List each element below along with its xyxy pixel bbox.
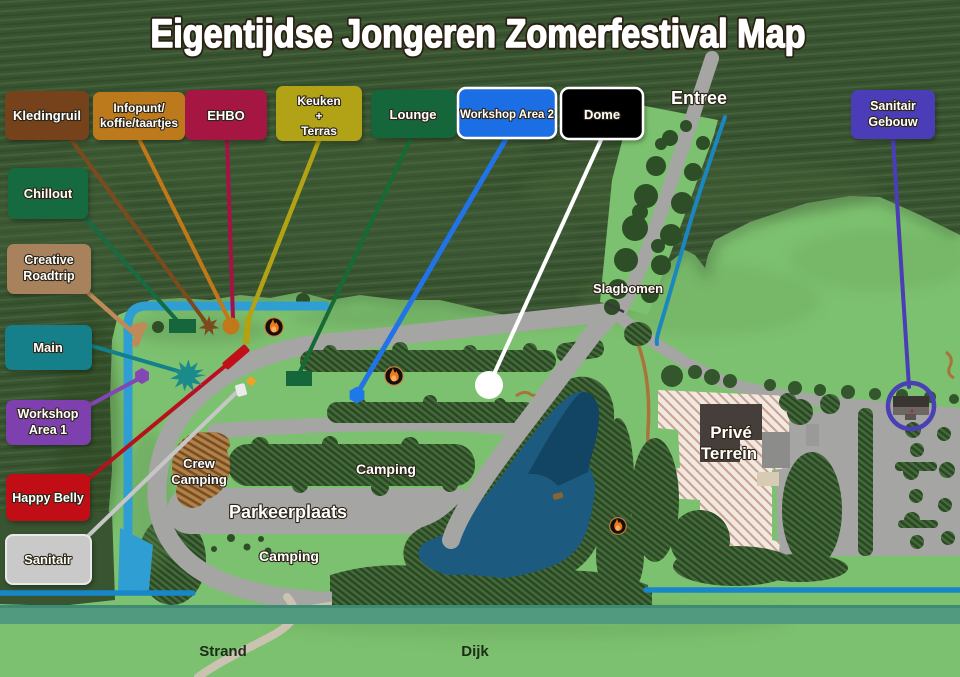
svg-text:Workshop Area 2: Workshop Area 2 [460, 109, 554, 121]
svg-text:Lounge: Lounge [390, 107, 437, 122]
svg-text:Roadtrip: Roadtrip [23, 269, 75, 283]
svg-text:Crew: Crew [183, 456, 216, 471]
svg-text:Infopunt/: Infopunt/ [113, 101, 165, 115]
svg-text:+: + [315, 109, 322, 123]
svg-text:Strand: Strand [199, 643, 247, 660]
svg-text:Creative: Creative [24, 253, 73, 267]
svg-text:Parkeerplaats: Parkeerplaats [229, 502, 347, 522]
svg-text:Privé: Privé [710, 423, 752, 442]
svg-text:Happy Belly: Happy Belly [12, 491, 84, 505]
svg-text:Entree: Entree [671, 88, 727, 108]
svg-text:Camping: Camping [356, 461, 416, 477]
svg-text:Camping: Camping [259, 548, 319, 564]
svg-text:Dijk: Dijk [461, 643, 489, 660]
svg-text:Eigentijdse Jongeren Zomerfest: Eigentijdse Jongeren Zomerfestival Map [151, 12, 806, 56]
svg-text:Terras: Terras [301, 124, 337, 138]
svg-text:koffie/taartjes: koffie/taartjes [100, 116, 178, 130]
svg-text:Chillout: Chillout [24, 186, 73, 201]
svg-text:Sanitair: Sanitair [24, 552, 72, 567]
svg-text:Gebouw: Gebouw [868, 115, 918, 129]
svg-text:Camping: Camping [171, 472, 227, 487]
svg-text:Sanitair: Sanitair [870, 99, 916, 113]
svg-text:Terrein: Terrein [701, 444, 757, 463]
svg-text:Workshop: Workshop [18, 407, 79, 421]
svg-text:EHBO: EHBO [207, 108, 245, 123]
svg-text:Keuken: Keuken [297, 94, 340, 108]
svg-text:Dome: Dome [584, 107, 620, 122]
svg-text:Main: Main [33, 340, 63, 355]
svg-text:Area 1: Area 1 [29, 423, 67, 437]
svg-text:Slagbomen: Slagbomen [593, 281, 663, 296]
svg-text:Kledingruil: Kledingruil [13, 108, 81, 123]
